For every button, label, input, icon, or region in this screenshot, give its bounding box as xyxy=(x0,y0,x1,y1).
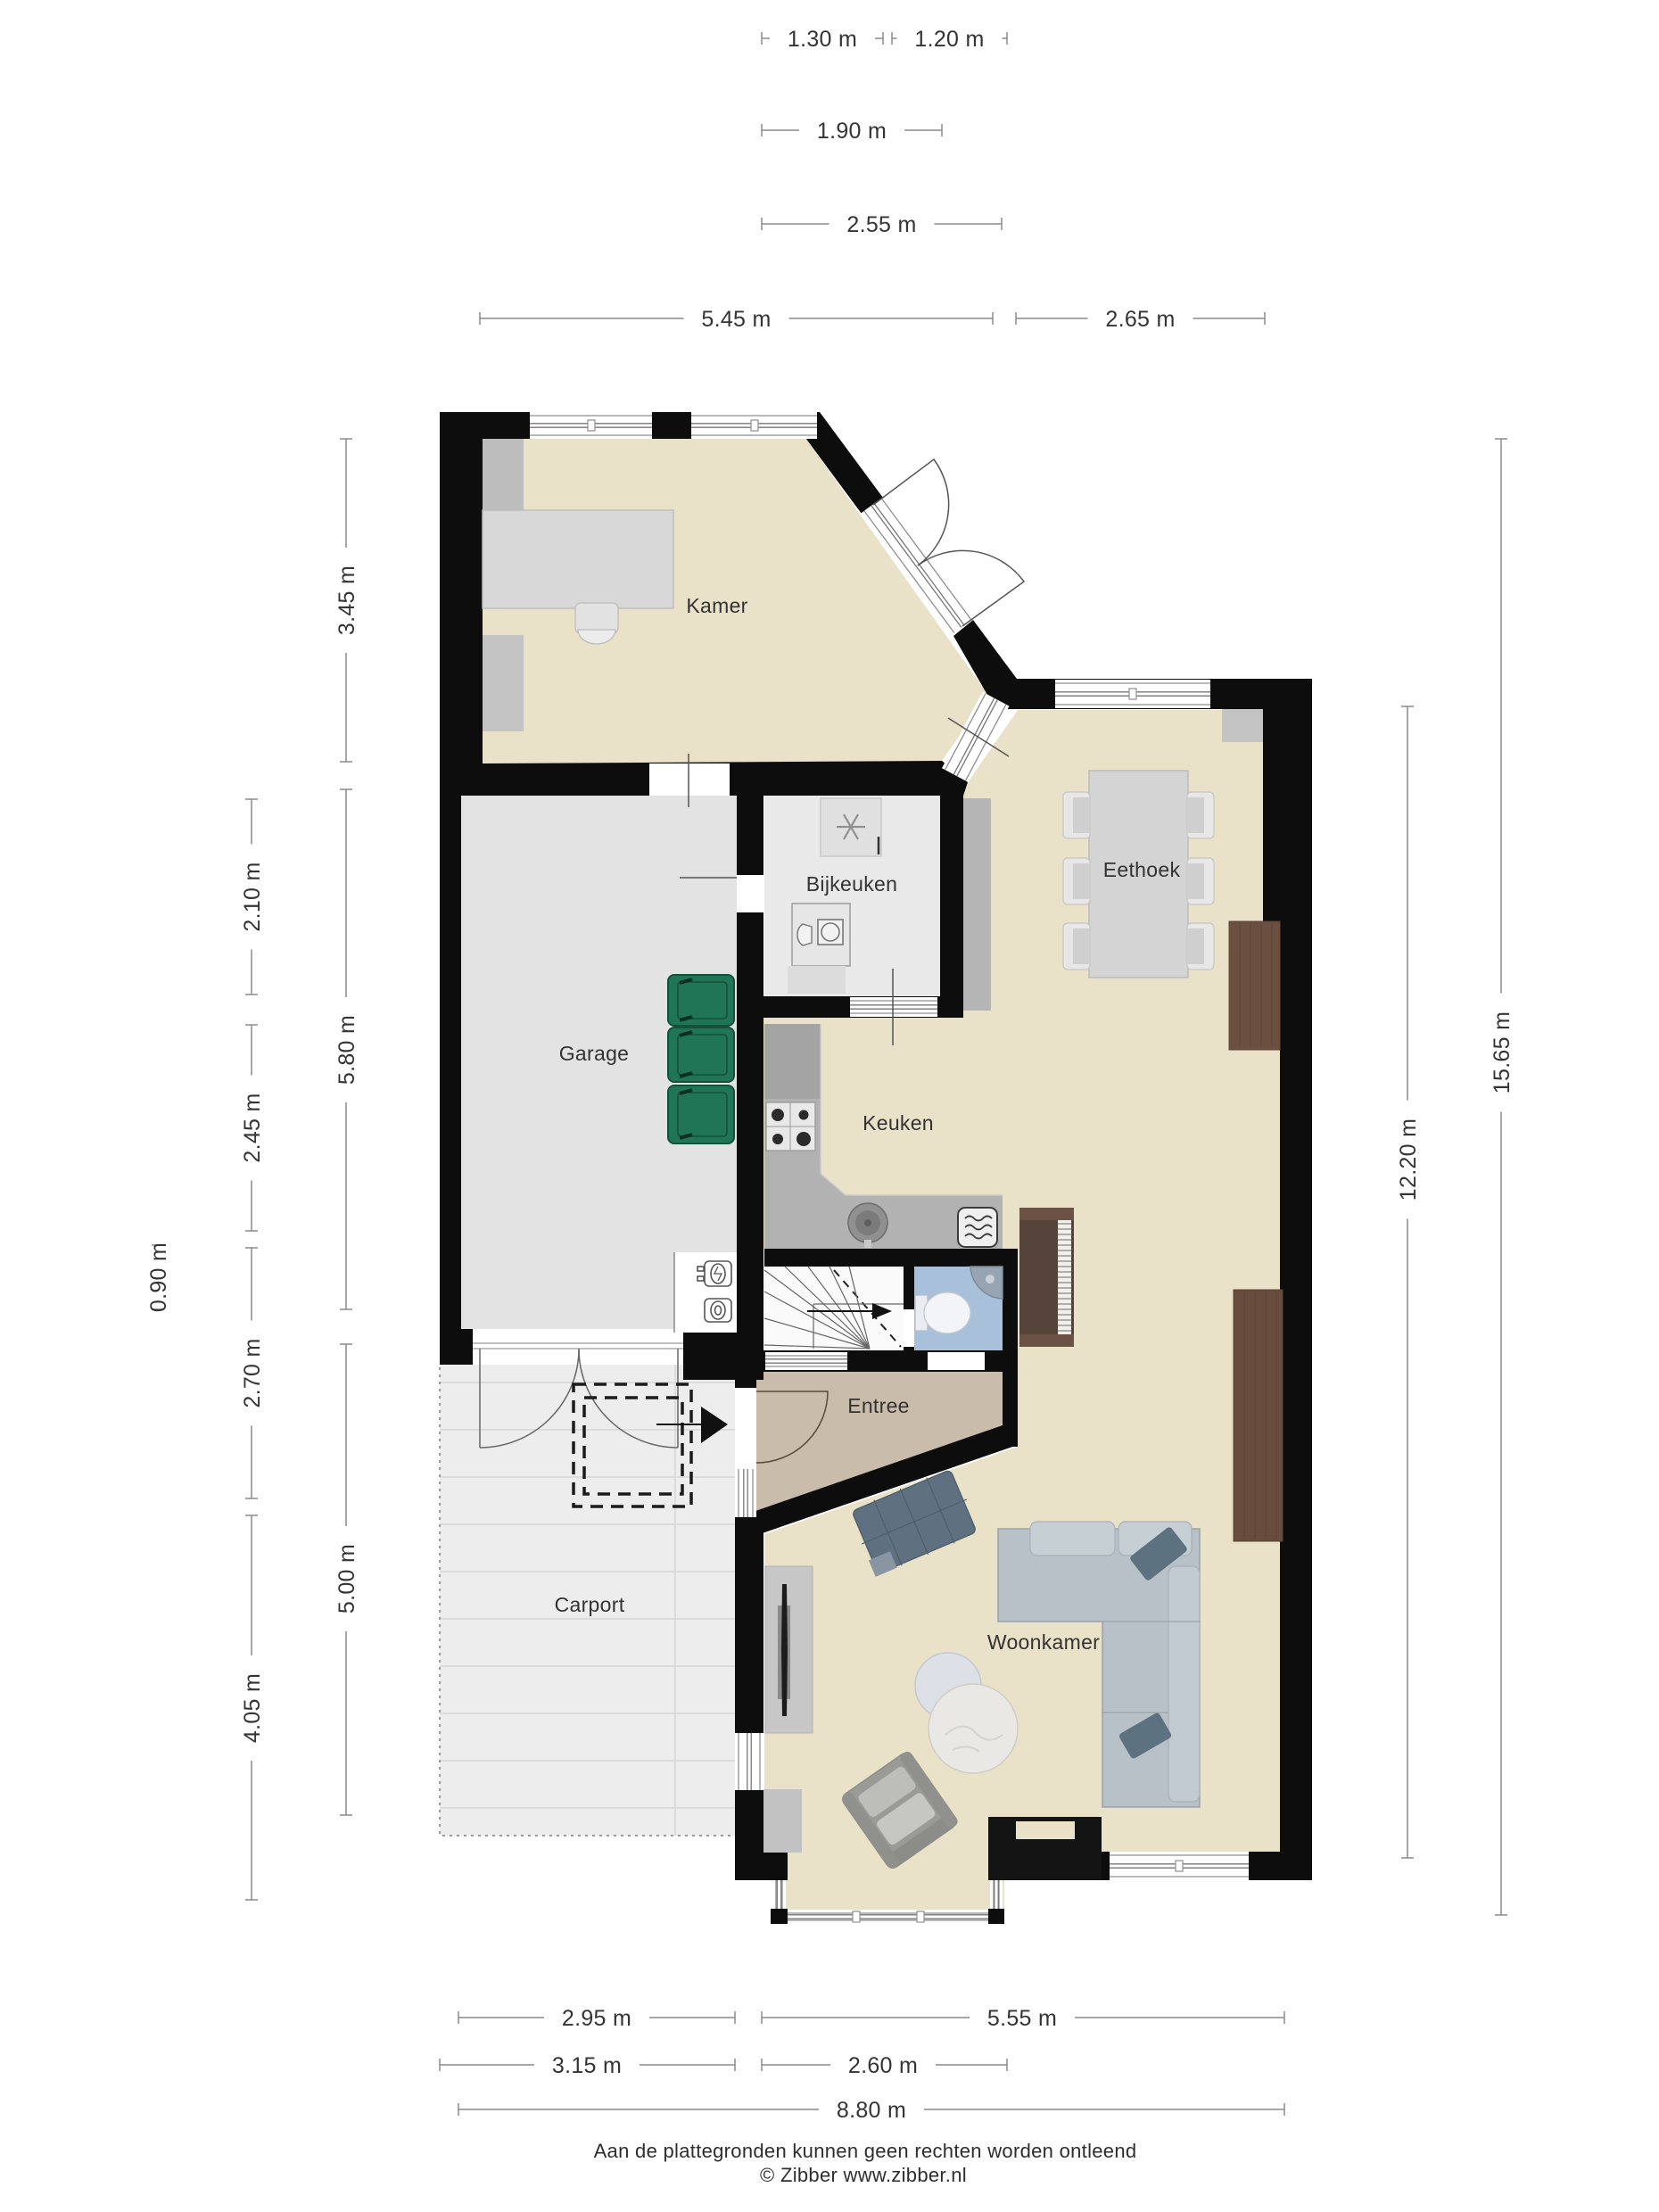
svg-text:2.55 m: 2.55 m xyxy=(846,212,916,237)
svg-text:2.70 m: 2.70 m xyxy=(240,1338,265,1407)
svg-text:Keuken: Keuken xyxy=(863,1111,934,1135)
svg-text:1.30 m: 1.30 m xyxy=(788,27,857,52)
svg-text:© Zibber www.zibber.nl: © Zibber www.zibber.nl xyxy=(760,2164,967,2186)
svg-text:1.20 m: 1.20 m xyxy=(914,27,984,52)
svg-text:2.95 m: 2.95 m xyxy=(562,2006,631,2031)
svg-text:Eethoek: Eethoek xyxy=(1103,858,1181,881)
svg-text:3.45 m: 3.45 m xyxy=(334,565,359,635)
svg-text:Carport: Carport xyxy=(555,1593,625,1616)
svg-text:5.55 m: 5.55 m xyxy=(987,2006,1057,2031)
svg-text:5.45 m: 5.45 m xyxy=(701,307,771,332)
svg-text:12.20 m: 12.20 m xyxy=(1396,1118,1421,1201)
svg-text:8.80 m: 8.80 m xyxy=(837,2098,906,2123)
svg-text:0.90 m: 0.90 m xyxy=(146,1242,171,1312)
svg-text:2.60 m: 2.60 m xyxy=(848,2053,918,2078)
svg-text:Bijkeuken: Bijkeuken xyxy=(806,872,897,896)
svg-text:Garage: Garage xyxy=(559,1042,630,1065)
svg-text:4.05 m: 4.05 m xyxy=(240,1673,265,1743)
svg-text:3.15 m: 3.15 m xyxy=(552,2053,622,2078)
svg-text:Woonkamer: Woonkamer xyxy=(987,1630,1100,1654)
svg-text:Aan de plattegronden kunnen ge: Aan de plattegronden kunnen geen rechten… xyxy=(594,2140,1137,2162)
svg-text:2.45 m: 2.45 m xyxy=(240,1093,265,1162)
svg-text:2.65 m: 2.65 m xyxy=(1105,307,1175,332)
svg-text:5.80 m: 5.80 m xyxy=(334,1015,359,1085)
svg-text:2.10 m: 2.10 m xyxy=(240,862,265,931)
svg-text:15.65 m: 15.65 m xyxy=(1490,1011,1515,1094)
svg-text:Kamer: Kamer xyxy=(686,594,747,617)
svg-text:5.00 m: 5.00 m xyxy=(334,1544,359,1614)
svg-text:1.90 m: 1.90 m xyxy=(817,119,887,144)
svg-text:Entree: Entree xyxy=(847,1394,910,1417)
